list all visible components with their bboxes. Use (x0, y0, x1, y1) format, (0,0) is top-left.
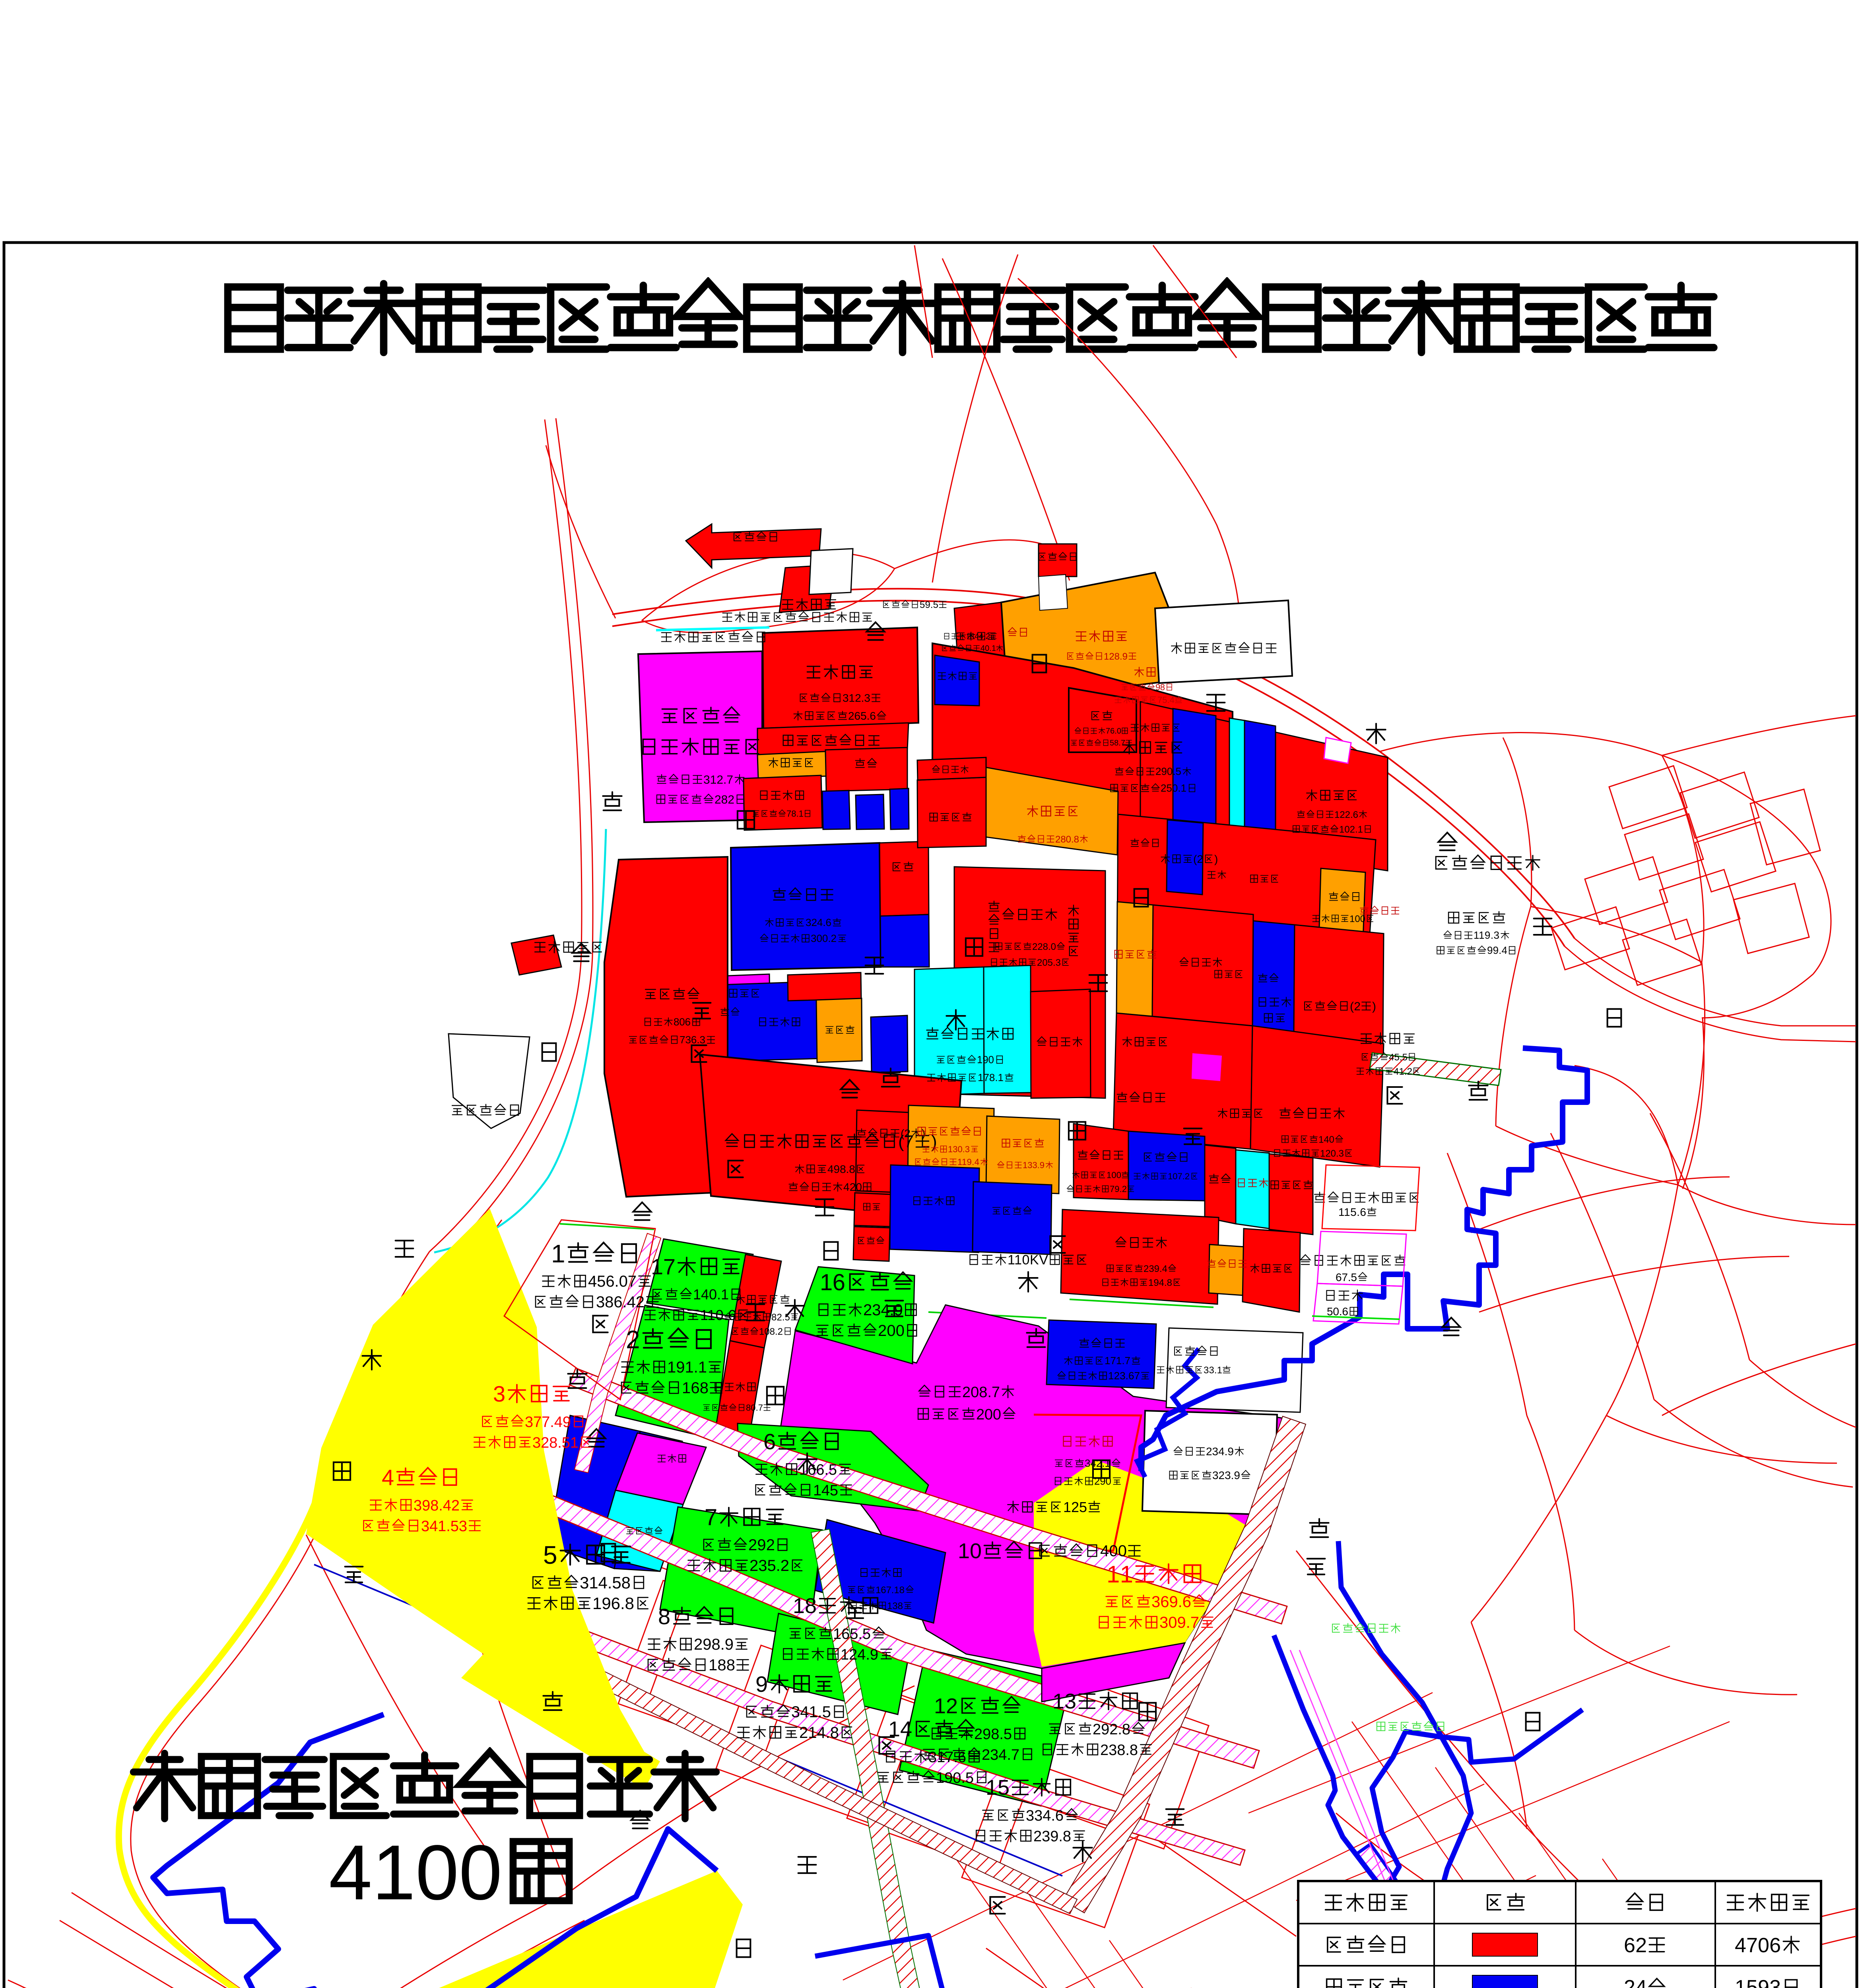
svg-text:82.5: 82.5 (771, 1312, 790, 1323)
svg-text:324.6: 324.6 (806, 916, 831, 928)
svg-text:194.8: 194.8 (1148, 1277, 1172, 1288)
svg-text:62: 62 (1624, 1934, 1647, 1957)
svg-text:234.7: 234.7 (982, 1747, 1019, 1763)
svg-text:341.5: 341.5 (791, 1703, 831, 1721)
svg-text:369.6: 369.6 (1151, 1593, 1191, 1611)
svg-text:292: 292 (748, 1536, 775, 1554)
svg-text:4100: 4100 (329, 1829, 502, 1916)
svg-text:41.2: 41.2 (1394, 1066, 1412, 1077)
svg-text:292.8: 292.8 (1093, 1721, 1130, 1738)
svg-text:282: 282 (714, 793, 734, 806)
svg-text:): ) (922, 1127, 925, 1140)
svg-text:17: 17 (651, 1254, 676, 1279)
svg-text:200: 200 (878, 1322, 905, 1340)
svg-text:166.5: 166.5 (799, 1462, 837, 1478)
svg-text:165.5: 165.5 (833, 1626, 871, 1642)
svg-text:140: 140 (1318, 1134, 1334, 1145)
svg-text:11: 11 (1107, 1561, 1133, 1588)
svg-text:50.6: 50.6 (1327, 1305, 1348, 1318)
svg-text:123.67: 123.67 (1108, 1370, 1140, 1382)
svg-text:133.9: 133.9 (1023, 1160, 1045, 1170)
svg-text:3: 3 (493, 1381, 505, 1406)
svg-text:12: 12 (934, 1694, 958, 1718)
svg-text:420: 420 (843, 1181, 862, 1193)
svg-text:171.7: 171.7 (1105, 1355, 1130, 1367)
svg-text:280.8: 280.8 (1055, 834, 1079, 845)
svg-text:265.6: 265.6 (848, 710, 876, 722)
svg-text:9: 9 (755, 1672, 768, 1697)
svg-text:119.4: 119.4 (957, 1157, 979, 1167)
svg-text:234.9: 234.9 (1206, 1445, 1234, 1458)
svg-text:8: 8 (658, 1604, 670, 1629)
svg-text:208.7: 208.7 (962, 1384, 1000, 1401)
svg-text:122.6: 122.6 (1334, 810, 1358, 820)
svg-text:191.1: 191.1 (667, 1359, 707, 1376)
svg-text:78.1: 78.1 (786, 809, 804, 819)
svg-text:806: 806 (674, 1016, 691, 1028)
svg-text:4: 4 (382, 1465, 394, 1490)
svg-text:309.7: 309.7 (1159, 1614, 1199, 1631)
svg-text:1593: 1593 (1735, 1976, 1781, 1988)
svg-text:24: 24 (1624, 1976, 1647, 1988)
svg-text:110KV: 110KV (1008, 1252, 1048, 1268)
svg-text:16: 16 (820, 1270, 845, 1295)
svg-text:341.53: 341.53 (421, 1518, 467, 1535)
svg-text:119.3: 119.3 (1474, 929, 1499, 941)
svg-text:33.1: 33.1 (1204, 1365, 1222, 1376)
svg-text:4706: 4706 (1735, 1934, 1781, 1957)
svg-text:398.42: 398.42 (414, 1497, 460, 1514)
svg-text:7: 7 (705, 1505, 717, 1530)
svg-text:): ) (1214, 853, 1218, 865)
svg-text:290: 290 (1094, 1475, 1111, 1487)
svg-text:190: 190 (977, 1054, 994, 1066)
svg-text:400: 400 (1100, 1542, 1127, 1560)
svg-text:14: 14 (888, 1717, 912, 1741)
svg-text:1: 1 (551, 1239, 565, 1268)
svg-text:290.5: 290.5 (1155, 765, 1181, 777)
svg-text:(2: (2 (1350, 1000, 1361, 1013)
svg-text:386.42: 386.42 (596, 1293, 645, 1311)
svg-text:130.3: 130.3 (948, 1144, 970, 1154)
svg-text:317.6: 317.6 (928, 1749, 966, 1766)
svg-text:107.2: 107.2 (1168, 1171, 1190, 1181)
svg-text:15: 15 (986, 1776, 1010, 1800)
svg-text:18: 18 (793, 1594, 817, 1618)
svg-text:145: 145 (813, 1482, 838, 1499)
svg-text:238.8: 238.8 (1100, 1742, 1138, 1759)
svg-text:59.5: 59.5 (920, 600, 938, 610)
svg-text:45.5: 45.5 (1389, 1052, 1408, 1063)
svg-text:125: 125 (1063, 1499, 1087, 1515)
svg-text:312.3: 312.3 (843, 692, 870, 704)
svg-text:167.18: 167.18 (876, 1585, 905, 1596)
svg-text:2: 2 (626, 1325, 640, 1354)
svg-text:298.9: 298.9 (694, 1636, 734, 1653)
svg-text:76.0: 76.0 (1106, 727, 1121, 736)
svg-text:5: 5 (543, 1541, 557, 1569)
svg-text:235.2: 235.2 (749, 1557, 789, 1574)
svg-text:79.2: 79.2 (1110, 1184, 1127, 1194)
svg-text:298.5: 298.5 (974, 1726, 1012, 1743)
svg-text:100: 100 (1349, 914, 1365, 924)
svg-text:456.07: 456.07 (588, 1273, 637, 1290)
svg-text:200: 200 (976, 1406, 1001, 1423)
svg-text:377.49: 377.49 (525, 1414, 571, 1431)
svg-text:): ) (1372, 1000, 1376, 1013)
svg-text:342.1: 342.1 (1085, 1457, 1111, 1469)
svg-text:128.9: 128.9 (1104, 651, 1128, 662)
svg-text:205.3: 205.3 (1037, 957, 1061, 968)
svg-text:214.8: 214.8 (799, 1724, 839, 1741)
svg-text:239.8: 239.8 (1033, 1828, 1071, 1845)
svg-text:314.58: 314.58 (580, 1573, 631, 1592)
svg-text:6: 6 (763, 1429, 776, 1454)
svg-text:115.6: 115.6 (1338, 1206, 1366, 1218)
svg-text:736.3: 736.3 (680, 1034, 705, 1046)
svg-text:10: 10 (958, 1539, 982, 1563)
svg-text:58.7: 58.7 (1110, 739, 1125, 747)
svg-text:168: 168 (682, 1379, 709, 1397)
svg-text:67.5: 67.5 (1336, 1271, 1357, 1283)
svg-text:328.51: 328.51 (532, 1435, 579, 1451)
svg-text:188: 188 (709, 1656, 735, 1674)
svg-text:13: 13 (1052, 1689, 1076, 1713)
svg-text:80.7: 80.7 (746, 1403, 763, 1413)
svg-text:75.4: 75.4 (1157, 695, 1175, 705)
svg-text:138: 138 (887, 1601, 903, 1611)
svg-text:120.3: 120.3 (1320, 1148, 1344, 1159)
svg-text:124.9: 124.9 (841, 1646, 878, 1663)
svg-text:234.9: 234.9 (863, 1301, 903, 1319)
svg-text:190.5: 190.5 (936, 1770, 974, 1786)
svg-text:228.0: 228.0 (1032, 942, 1056, 952)
svg-text:99.4: 99.4 (1487, 944, 1507, 956)
svg-text:239.4: 239.4 (1144, 1264, 1167, 1274)
svg-text:98: 98 (1155, 682, 1165, 692)
svg-text:312.7: 312.7 (703, 773, 733, 786)
svg-text:178.1: 178.1 (978, 1072, 1004, 1083)
svg-text:498.8: 498.8 (827, 1163, 855, 1175)
svg-text:300.2: 300.2 (811, 932, 837, 944)
svg-text:250.1: 250.1 (1161, 782, 1186, 794)
svg-text:196.8: 196.8 (592, 1594, 634, 1613)
svg-text:40.1: 40.1 (980, 644, 996, 653)
svg-text:334.6: 334.6 (1026, 1807, 1064, 1824)
svg-text:102.1: 102.1 (1339, 824, 1363, 835)
svg-text:(2: (2 (901, 1127, 911, 1140)
svg-text:323.9: 323.9 (1212, 1469, 1240, 1481)
svg-text:140.1: 140.1 (693, 1286, 729, 1303)
svg-text:(2: (2 (1193, 853, 1203, 865)
svg-text:108.2: 108.2 (759, 1326, 783, 1337)
svg-text:100: 100 (1107, 1170, 1121, 1180)
